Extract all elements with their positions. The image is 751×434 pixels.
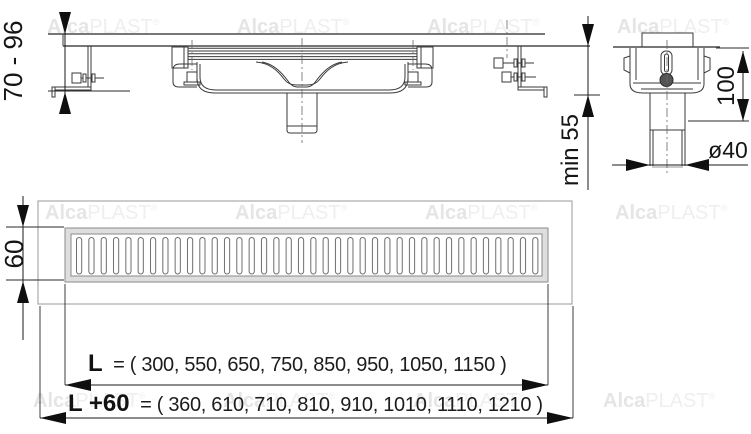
grate-slot bbox=[175, 238, 180, 275]
grate-slot bbox=[483, 238, 488, 275]
grate-slot bbox=[446, 238, 451, 275]
grate-slot bbox=[533, 238, 538, 275]
side-view: 70 - 96 min 55 bbox=[0, 12, 600, 190]
grate-slot bbox=[187, 238, 192, 275]
grate-slot bbox=[348, 238, 353, 275]
section-view: 100 ø40 bbox=[612, 33, 749, 175]
grate-slot bbox=[212, 238, 217, 275]
channel-end-cap-left bbox=[172, 47, 188, 68]
grate-slot bbox=[372, 238, 377, 275]
grate-slot bbox=[385, 238, 390, 275]
grate-slot bbox=[422, 238, 427, 275]
dim-channel-length: L = ( 300, 550, 650, 750, 850, 950, 1050… bbox=[65, 350, 548, 391]
dim-body-height: 100 bbox=[688, 48, 749, 121]
dim-min-screed: min 55 bbox=[557, 16, 600, 190]
grate-slot bbox=[89, 238, 94, 275]
grate-slot bbox=[261, 238, 266, 275]
grate-slot bbox=[126, 238, 131, 275]
channel-side bbox=[172, 38, 433, 143]
brand-watermark-layer: AlcaPLAST®AlcaPLAST®AlcaPLAST®AlcaPLAST®… bbox=[33, 16, 730, 412]
technical-drawing: AlcaPLAST®AlcaPLAST®AlcaPLAST®AlcaPLAST®… bbox=[0, 0, 751, 434]
grate-slot bbox=[150, 238, 155, 275]
drawing-canvas: AlcaPLAST®AlcaPLAST®AlcaPLAST®AlcaPLAST®… bbox=[0, 0, 751, 434]
section-slot bbox=[661, 51, 672, 75]
grate-slot bbox=[434, 238, 439, 275]
grate-slot bbox=[224, 238, 229, 275]
grate-slot bbox=[200, 238, 205, 275]
grate-slot bbox=[311, 238, 316, 275]
grate-slot bbox=[237, 238, 242, 275]
min-screed-label: min 55 bbox=[557, 114, 584, 186]
left-wall-bracket bbox=[52, 46, 104, 97]
grate-slot bbox=[508, 238, 513, 275]
brand-watermark: AlcaPLAST® bbox=[45, 202, 158, 224]
grate-slot bbox=[101, 238, 106, 275]
grate-slot bbox=[496, 238, 501, 275]
grate-slot bbox=[298, 238, 303, 275]
grate-slot bbox=[163, 238, 168, 275]
channel-length-text: L = ( 300, 550, 650, 750, 850, 950, 1050… bbox=[88, 350, 507, 377]
grate-slot bbox=[113, 238, 118, 275]
installation-height-label: 70 - 96 bbox=[0, 21, 28, 102]
outlet-diameter-label: ø40 bbox=[708, 137, 748, 163]
grate-edge-lines bbox=[188, 48, 417, 59]
channel-end-cap-right bbox=[417, 47, 433, 68]
brand-watermark: AlcaPLAST® bbox=[615, 202, 728, 224]
overall-length-text: L +60 = ( 360, 610, 710, 810, 910, 1010,… bbox=[68, 390, 543, 417]
grate-slot bbox=[274, 238, 279, 275]
brand-watermark: AlcaPLAST® bbox=[235, 202, 348, 224]
grate-slot bbox=[397, 238, 402, 275]
dim-overall-length: L +60 = ( 360, 610, 710, 810, 910, 1010,… bbox=[40, 390, 573, 424]
grate-slot bbox=[471, 238, 476, 275]
body-height-label: 100 bbox=[713, 66, 740, 106]
grate-slot bbox=[77, 238, 82, 275]
section-top-cap bbox=[642, 33, 693, 47]
grate-slot bbox=[459, 238, 464, 275]
grate-slot bbox=[138, 238, 143, 275]
grate-slot bbox=[360, 238, 365, 275]
section-bolt bbox=[660, 74, 673, 87]
grate-slot bbox=[323, 238, 328, 275]
dim-outlet-diameter: ø40 bbox=[612, 137, 748, 171]
grate-slot bbox=[409, 238, 414, 275]
grate-slot bbox=[249, 238, 254, 275]
grate-slot bbox=[286, 238, 291, 275]
grate-slot bbox=[335, 238, 340, 275]
grate-width-label: 60 bbox=[0, 240, 29, 269]
brand-watermark: AlcaPLAST® bbox=[603, 390, 716, 412]
grate-slot bbox=[520, 238, 525, 275]
brand-watermark: AlcaPLAST® bbox=[425, 202, 538, 224]
trap-bowl bbox=[197, 62, 408, 93]
